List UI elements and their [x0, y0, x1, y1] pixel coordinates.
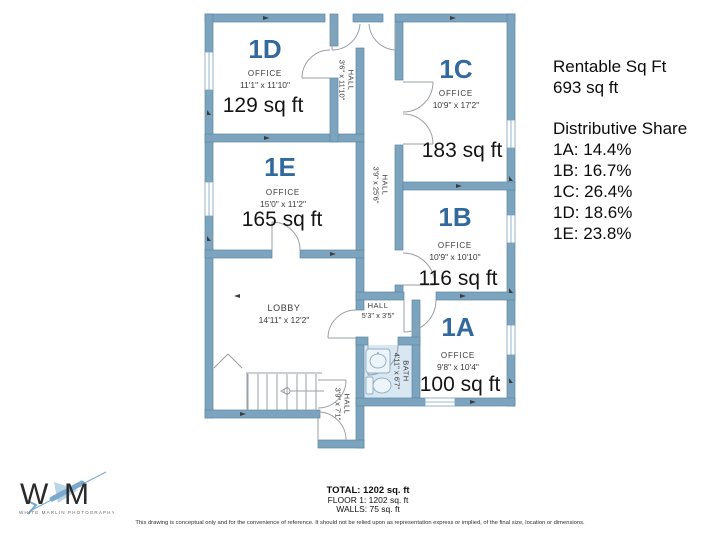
door-lobby-hall [328, 310, 356, 338]
hall-stairs-label: HALL 3'9" x 7'1" [334, 388, 352, 421]
room-1a-label: 1A OFFICE 9'8" x 10'4" 100 sq ft [420, 312, 501, 396]
window [507, 120, 515, 148]
window [205, 52, 213, 90]
hall-small-label: HALL 5'3" x 3'5" [362, 301, 395, 320]
disclaimer-text: This drawing is conceptual only and for … [0, 520, 720, 526]
room-type: OFFICE [441, 351, 475, 360]
door-1d [302, 50, 330, 78]
logo-letter-m: M [64, 478, 89, 511]
room-id: 1B [438, 202, 471, 232]
room-type: OFFICE [248, 69, 282, 78]
room-dims: 10'9" x 17'2" [433, 100, 480, 110]
room-area: 100 sq ft [420, 373, 501, 396]
rentable-title: Rentable Sq Ft [553, 56, 687, 77]
space-name: HALL [381, 175, 390, 196]
space-dims: 3'9" x 7'1" [334, 388, 343, 421]
space-name: BATH [402, 360, 411, 381]
room-type: OFFICE [439, 89, 473, 98]
logo-caption: WHITE MARLIN PHOTOGRAPHY [19, 510, 114, 515]
room-id: 1A [441, 312, 474, 342]
room-1e-label: 1E OFFICE 15'0" x 11'2" 165 sq ft [242, 152, 323, 231]
share-item-1b: 1B: 16.7% [553, 160, 687, 181]
window [425, 398, 455, 406]
room-id: 1D [248, 34, 281, 64]
bath-fixtures [366, 349, 391, 394]
room-area: 183 sq ft [422, 139, 503, 162]
staircase [246, 373, 324, 410]
space-name: HALL [347, 70, 356, 91]
window [205, 182, 213, 216]
sink [366, 349, 390, 373]
rentable-value: 693 sq ft [553, 77, 687, 98]
room-area: 116 sq ft [419, 267, 498, 290]
room-type: OFFICE [438, 241, 472, 250]
room-area: 129 sq ft [223, 94, 304, 117]
share-item-1e: 1E: 23.8% [553, 223, 687, 244]
spacer [553, 98, 687, 118]
hall-main-label: HALL 3'9" x 25'6" [372, 167, 390, 204]
share-item-1a: 1A: 14.4% [553, 139, 687, 160]
stats-panel: Rentable Sq Ft 693 sq ft Distributive Sh… [553, 56, 687, 244]
space-dims: 5'3" x 3'5" [362, 311, 395, 320]
room-id: 1E [264, 152, 296, 182]
room-1b-label: 1B OFFICE 10'9" x 10'10" 116 sq ft [419, 202, 498, 290]
space-name: HALL [343, 394, 352, 415]
share-item-1d: 1D: 18.6% [553, 202, 687, 223]
door-1c-double [403, 82, 433, 144]
share-item-1c: 1C: 26.4% [553, 181, 687, 202]
room-id: 1C [439, 54, 472, 84]
window [507, 325, 515, 355]
room-dims: 10'9" x 10'10" [429, 252, 480, 262]
toilet [366, 377, 391, 394]
window [507, 215, 515, 243]
room-area: 165 sq ft [242, 208, 323, 231]
room-1d-label: 1D OFFICE 11'1" x 11'10" 129 sq ft [223, 34, 304, 117]
photography-logo: W M WHITE MARLIN PHOTOGRAPHY [18, 466, 114, 518]
space-name: LOBBY [267, 303, 300, 313]
logo-letter-w: W [20, 478, 49, 511]
room-type: OFFICE [266, 188, 300, 197]
space-dims: 4'11" x 6'7" [393, 353, 402, 390]
entry-door-swing [214, 354, 242, 368]
room-dims: 9'8" x 10'4" [437, 362, 479, 372]
room-dims: 11'1" x 11'10" [240, 80, 290, 90]
totals-block: TOTAL: 1202 sq. ft FLOOR 1: 1202 sq. ft … [8, 486, 720, 514]
space-name: HALL [368, 301, 389, 310]
walls-area: WALLS: 75 sq. ft [8, 505, 720, 514]
share-title: Distributive Share [553, 118, 687, 139]
space-dims: 3'6" x 11'10" [338, 60, 347, 101]
space-dims: 14'11" x 12'2" [259, 315, 310, 325]
room-1c-label: 1C OFFICE 10'9" x 17'2" 183 sq ft [422, 54, 503, 162]
door-vestibule [369, 22, 395, 50]
space-dims: 3'9" x 25'6" [372, 167, 381, 204]
floorplan-page: 1D OFFICE 11'1" x 11'10" 129 sq ft 1E OF… [0, 0, 720, 540]
hall-top-label: HALL 3'6" x 11'10" [338, 60, 356, 101]
lobby-label: LOBBY 14'11" x 12'2" [259, 303, 310, 325]
